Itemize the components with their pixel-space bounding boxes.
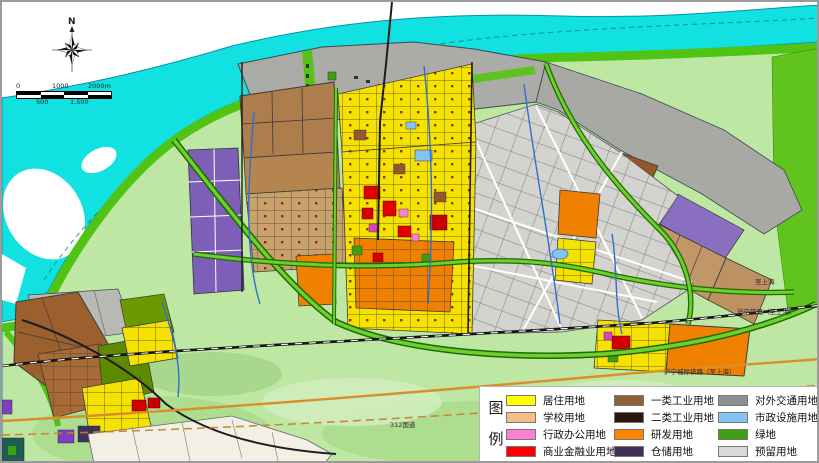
legend-title-char-2: 例 — [487, 424, 505, 455]
label-g312-road: 312国道 — [390, 422, 415, 429]
legend-color-swatch — [614, 446, 644, 457]
legend-item-label: 仓储用地 — [651, 444, 693, 459]
legend-item: 一类工业用地 — [614, 392, 714, 409]
label-to-shanghai: 至上海 — [755, 279, 775, 286]
scale-tick-1500: 1,500 — [70, 98, 89, 106]
legend-item-label: 研发用地 — [651, 427, 693, 442]
legend-item: 行政办公用地 — [506, 426, 617, 443]
compass-rose: N — [50, 14, 94, 76]
legend-item-label: 一类工业用地 — [651, 393, 714, 408]
scale-tick-2000: 2000m — [88, 82, 111, 90]
legend-item: 学校用地 — [506, 409, 617, 426]
legend-column-3: 对外交通用地市政设施用地绿地预留用地 — [718, 392, 818, 460]
legend-item: 研发用地 — [614, 426, 714, 443]
legend-column-2: 一类工业用地二类工业用地研发用地仓储用地 — [614, 392, 714, 460]
legend-item-label: 二类工业用地 — [651, 410, 714, 425]
legend-item: 预留用地 — [718, 443, 818, 460]
compass-north-label: N — [68, 17, 76, 27]
legend-column-1: 居住用地学校用地行政办公用地商业金融业用地 — [506, 392, 617, 460]
legend-color-swatch — [718, 412, 748, 423]
label-huning-railway: 沪宁铁路（至上海） — [737, 309, 796, 316]
legend-color-swatch — [506, 429, 536, 440]
scale-bar: 0 1000 2000m 500 1,500 — [14, 82, 114, 106]
legend-panel: 图 例 居住用地学校用地行政办公用地商业金融业用地 一类工业用地二类工业用地研发… — [479, 386, 819, 463]
legend-item-label: 对外交通用地 — [755, 393, 818, 408]
legend-item: 市政设施用地 — [718, 409, 818, 426]
legend-color-swatch — [718, 429, 748, 440]
legend-color-swatch — [718, 395, 748, 406]
legend-item: 商业金融业用地 — [506, 443, 617, 460]
legend-item-label: 居住用地 — [543, 393, 585, 408]
scale-tick-1000: 1000 — [52, 82, 69, 90]
legend-title-char-1: 图 — [487, 393, 505, 424]
legend-item-label: 预留用地 — [755, 444, 797, 459]
legend-item-label: 学校用地 — [543, 410, 585, 425]
legend-item-label: 市政设施用地 — [755, 410, 818, 425]
legend-color-swatch — [506, 412, 536, 423]
legend-item-label: 绿地 — [755, 427, 776, 442]
legend-color-swatch — [506, 446, 536, 457]
legend-item-label: 商业金融业用地 — [543, 444, 617, 459]
legend-color-swatch — [506, 395, 536, 406]
scale-tick-500: 500 — [36, 98, 48, 106]
label-intercity-railway: 沪宁城际铁路（至上海） — [664, 369, 736, 376]
legend-item: 仓储用地 — [614, 443, 714, 460]
wind-rose-petals — [57, 35, 87, 65]
legend-color-swatch — [614, 395, 644, 406]
legend-item: 对外交通用地 — [718, 392, 818, 409]
legend-color-swatch — [718, 446, 748, 457]
legend-color-swatch — [614, 429, 644, 440]
legend-item-label: 行政办公用地 — [543, 427, 606, 442]
planning-map-page: N — [0, 0, 819, 463]
legend-color-swatch — [614, 412, 644, 423]
legend-title: 图 例 — [487, 393, 505, 455]
legend-item: 二类工业用地 — [614, 409, 714, 426]
legend-item: 居住用地 — [506, 392, 617, 409]
scale-tick-0: 0 — [16, 82, 20, 90]
legend-item: 绿地 — [718, 426, 818, 443]
